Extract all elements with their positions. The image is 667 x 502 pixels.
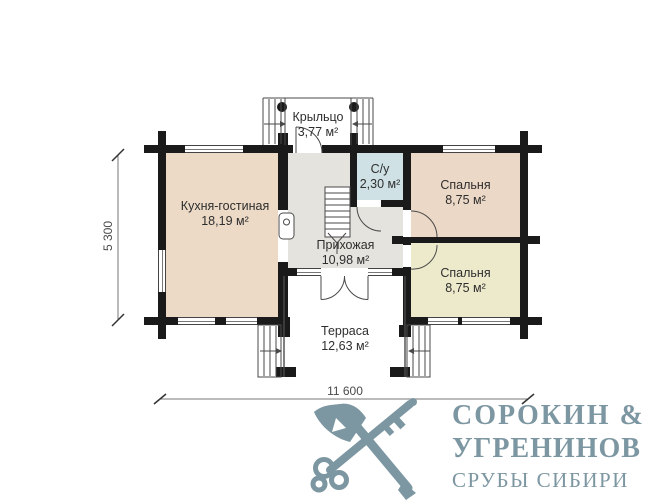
door-opening <box>403 245 411 267</box>
log-end <box>144 145 158 153</box>
door-opening <box>357 200 381 207</box>
dimension-depth: 5 300 <box>101 216 115 256</box>
room-label-hallway: Прихожая 10,98 м² <box>288 238 403 268</box>
wall-segment <box>520 145 528 325</box>
room-name: Крыльцо <box>273 110 363 125</box>
log-end <box>528 317 542 325</box>
brand-text: СОРОКИН & УГРЕНИНОВ СРУБЫ СИБИРИ <box>452 400 666 494</box>
room-label-bedroom-bottom: Спальня 8,75 м² <box>413 266 518 296</box>
room-label-terrace: Терраса 12,63 м² <box>290 324 400 354</box>
log-end <box>520 325 528 339</box>
log-end <box>520 131 528 145</box>
room-name: Кухня-гостиная <box>160 199 290 214</box>
wall-segment <box>403 237 411 245</box>
window <box>462 317 510 325</box>
room-label-wc: С/у 2,30 м² <box>352 162 408 192</box>
room-area: 10,98 м² <box>288 253 403 268</box>
log-end <box>528 145 542 153</box>
brand-tagline: СРУБЫ СИБИРИ <box>452 466 666 494</box>
wall-segment <box>403 267 411 317</box>
window <box>158 250 166 292</box>
room-label-kitchen: Кухня-гостиная 18,19 м² <box>160 199 290 229</box>
wall-segment <box>278 262 288 317</box>
window <box>428 317 458 325</box>
door-opening <box>293 145 322 153</box>
door-opening <box>321 268 368 276</box>
window <box>185 145 243 153</box>
door-opening <box>403 210 411 237</box>
room-area: 8,75 м² <box>413 193 518 208</box>
room-name: Терраса <box>290 324 400 339</box>
log-end <box>158 325 166 339</box>
wall-segment <box>411 237 520 243</box>
window <box>226 317 257 325</box>
room-label-bedroom-top: Спальня 8,75 м² <box>413 178 518 208</box>
terrace-post <box>390 367 410 377</box>
window <box>297 268 321 276</box>
room-area: 3,77 м² <box>273 125 363 140</box>
brand-name-line2: УГРЕНИНОВ <box>452 432 666 466</box>
room-name: Прихожая <box>288 238 403 253</box>
log-end <box>144 317 158 325</box>
room-name: С/у <box>352 162 408 177</box>
axe-key-icon <box>306 396 438 502</box>
wall-segment <box>350 200 357 207</box>
room-name: Спальня <box>413 266 518 281</box>
brand-name-line1: СОРОКИН & <box>452 400 666 432</box>
room-kitchen <box>166 153 278 317</box>
floor-plan: Крыльцо 3,77 м² Кухня-гостиная 18,19 м² … <box>0 0 667 502</box>
room-name: Спальня <box>413 178 518 193</box>
room-area: 2,30 м² <box>352 177 408 192</box>
room-area: 18,19 м² <box>160 214 290 229</box>
window <box>368 268 392 276</box>
window <box>178 317 215 325</box>
window <box>443 145 495 153</box>
log-end <box>399 325 411 337</box>
terrace-post <box>276 367 296 377</box>
room-label-porch: Крыльцо 3,77 м² <box>273 110 363 140</box>
log-end <box>278 325 290 337</box>
log-end <box>158 131 166 145</box>
wall-segment <box>158 145 166 325</box>
room-area: 12,63 м² <box>290 339 400 354</box>
log-end <box>528 236 540 244</box>
room-area: 8,75 м² <box>413 281 518 296</box>
